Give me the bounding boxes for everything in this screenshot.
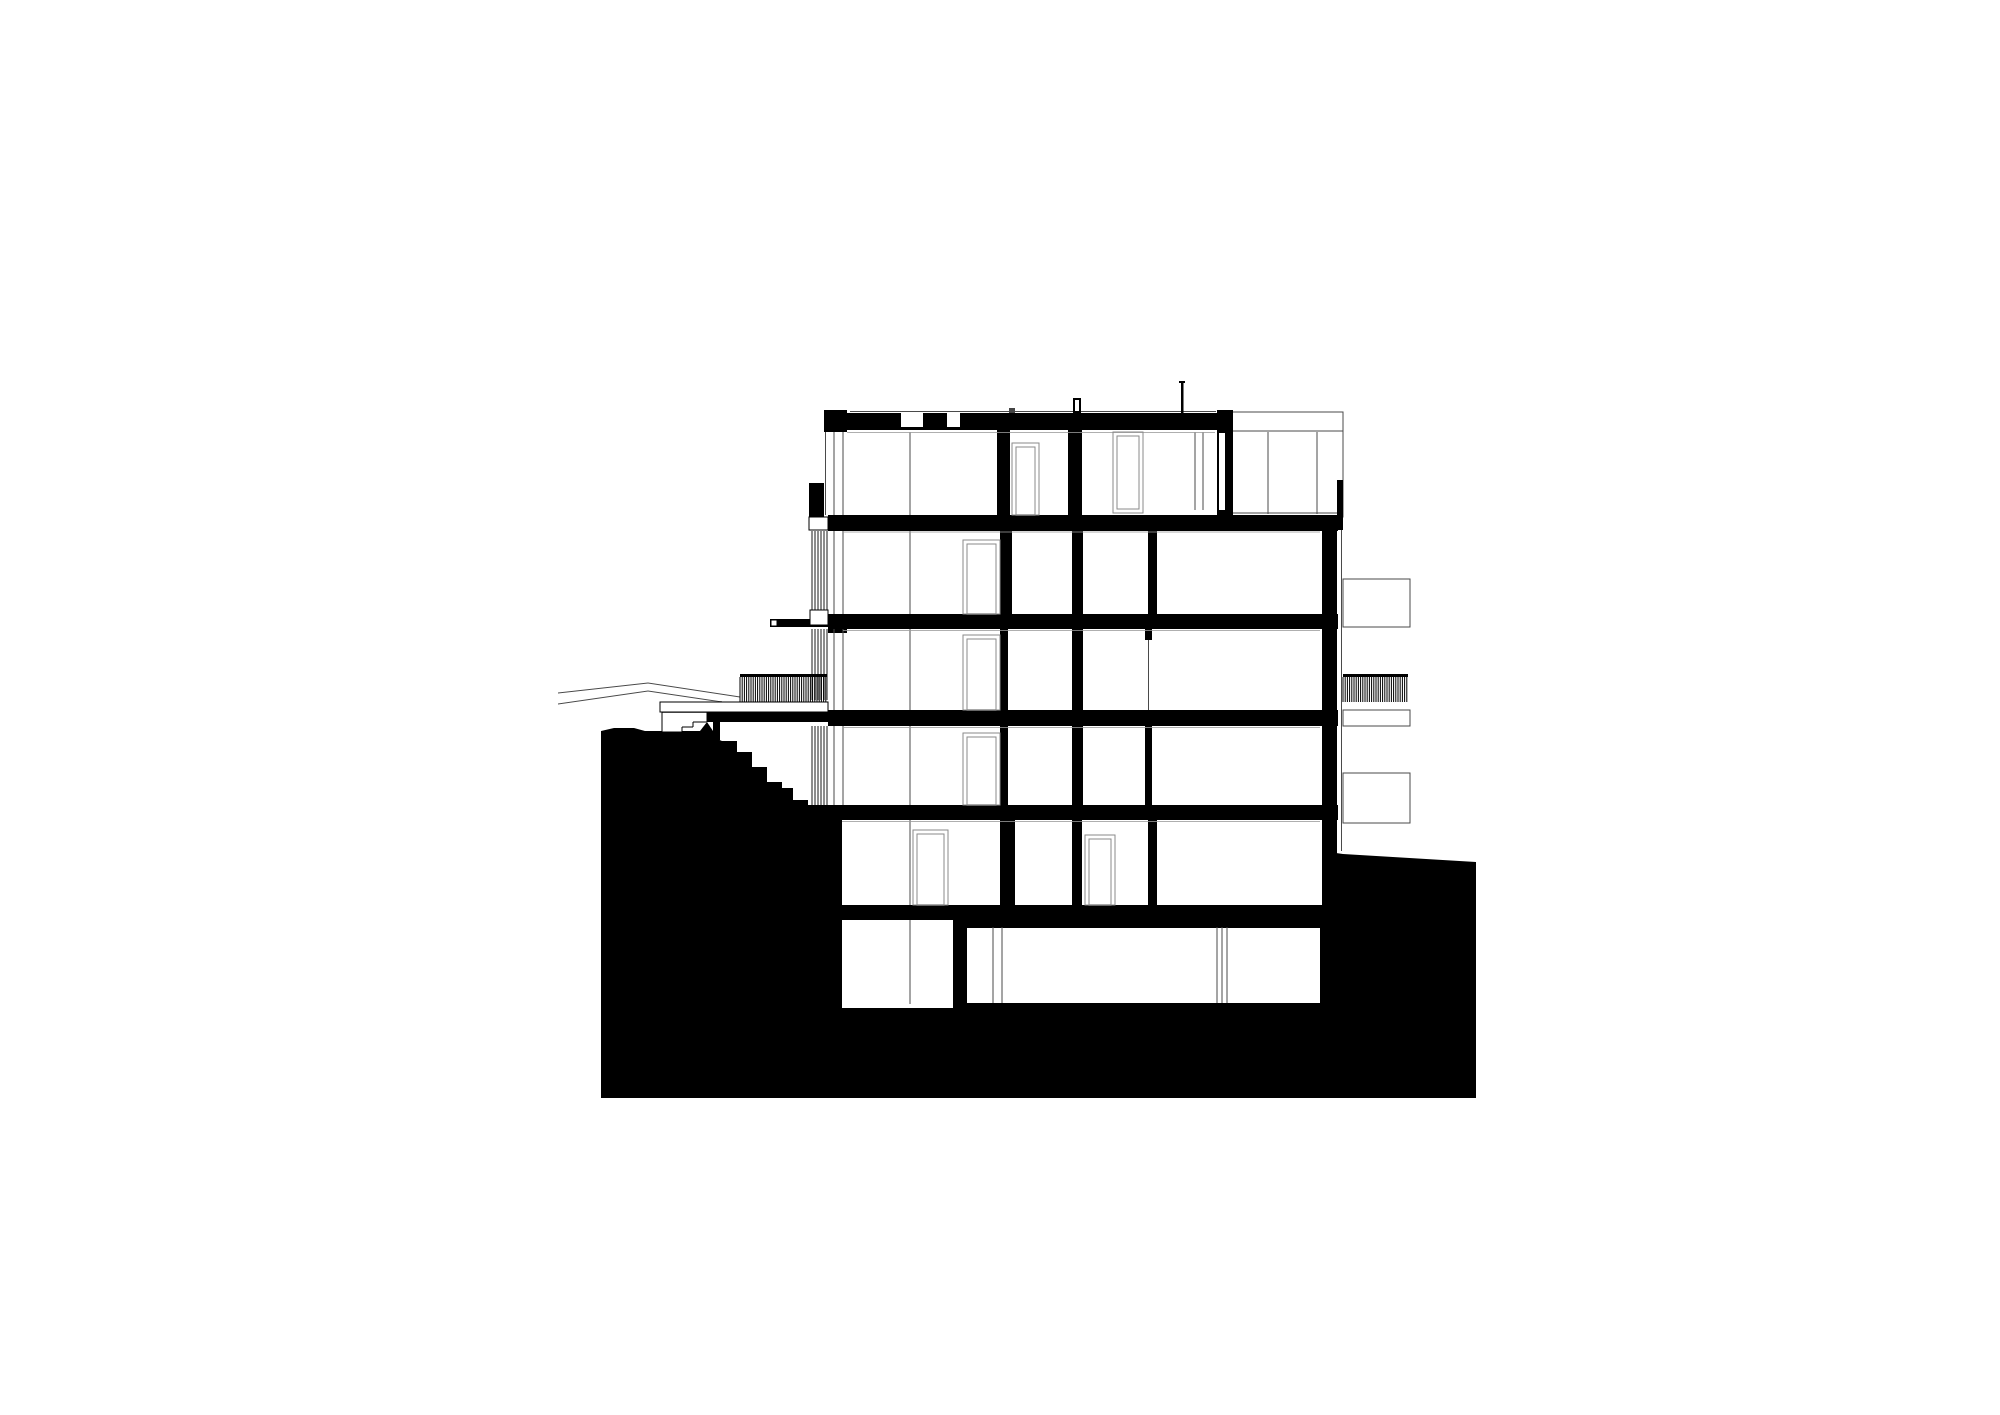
room [842, 820, 1000, 905]
cut-structure [793, 805, 1338, 820]
cut-structure [809, 483, 824, 517]
roof-vent [1009, 408, 1015, 413]
cut-structure [837, 905, 1322, 920]
roof-opening [1219, 433, 1225, 510]
door-frame-inner [967, 639, 996, 710]
cut-structure [828, 614, 1338, 629]
room [1157, 820, 1322, 905]
door-frame-outer [963, 635, 1000, 710]
cut-structure [1217, 410, 1233, 430]
cut-structure [953, 920, 967, 1008]
door-frame-inner [967, 737, 996, 805]
roof-opening [901, 413, 923, 427]
room [842, 920, 953, 1008]
cut-structure [1322, 530, 1337, 920]
cut-structure [1072, 820, 1082, 905]
cut-structure [828, 515, 1338, 531]
cut-structure [1072, 531, 1083, 614]
cut-structure [1343, 674, 1408, 677]
cut-structure [828, 710, 1338, 726]
cut-structure [707, 712, 850, 722]
door-frame-outer [963, 540, 1000, 614]
cut-structure [1337, 480, 1343, 530]
cut-structure [1148, 820, 1157, 905]
cut-structure [1320, 920, 1338, 1005]
building-section-drawing [0, 0, 2000, 1415]
room [967, 927, 1320, 1003]
slab-end-cap [771, 620, 777, 626]
slab-end-cap [809, 517, 828, 530]
cut-structure [1072, 726, 1083, 805]
cut-structure [1072, 629, 1083, 710]
cut-structure [1145, 726, 1152, 805]
cut-structure [824, 413, 1233, 430]
room [1015, 820, 1072, 905]
background-balcony-parapet [1343, 710, 1410, 726]
cut-structure [740, 674, 827, 677]
cut-structure [1000, 820, 1015, 905]
door-frame-inner [967, 544, 996, 614]
stair-steps [662, 712, 707, 732]
background-building-outline [1229, 412, 1343, 517]
walkway-slab [660, 702, 828, 712]
cut-structure [1068, 430, 1082, 515]
cut-structure [1000, 629, 1008, 710]
cut-structure [953, 920, 1322, 928]
roof-railing-post-cap [1179, 381, 1185, 383]
background-balcony-parapet [1343, 773, 1410, 823]
door-frame-inner [1016, 447, 1035, 515]
chimney-flue [1075, 400, 1079, 411]
cut-structure [1000, 531, 1012, 614]
window-frame-inner [1117, 436, 1139, 509]
slab-end-cap [810, 610, 828, 625]
cut-structure [824, 410, 847, 432]
roof-opening [947, 413, 960, 427]
background-balcony-parapet [1343, 579, 1410, 627]
door-frame-outer [963, 733, 1000, 805]
cut-structure [828, 629, 847, 633]
roof-markers [1009, 381, 1185, 413]
cut-structure [997, 430, 1010, 515]
drawing-sheet [0, 0, 2000, 1415]
roof-railing-post [1181, 381, 1184, 413]
cut-structure [1148, 531, 1157, 614]
cut-structure [1000, 726, 1008, 805]
background-roof-outline [558, 683, 740, 697]
